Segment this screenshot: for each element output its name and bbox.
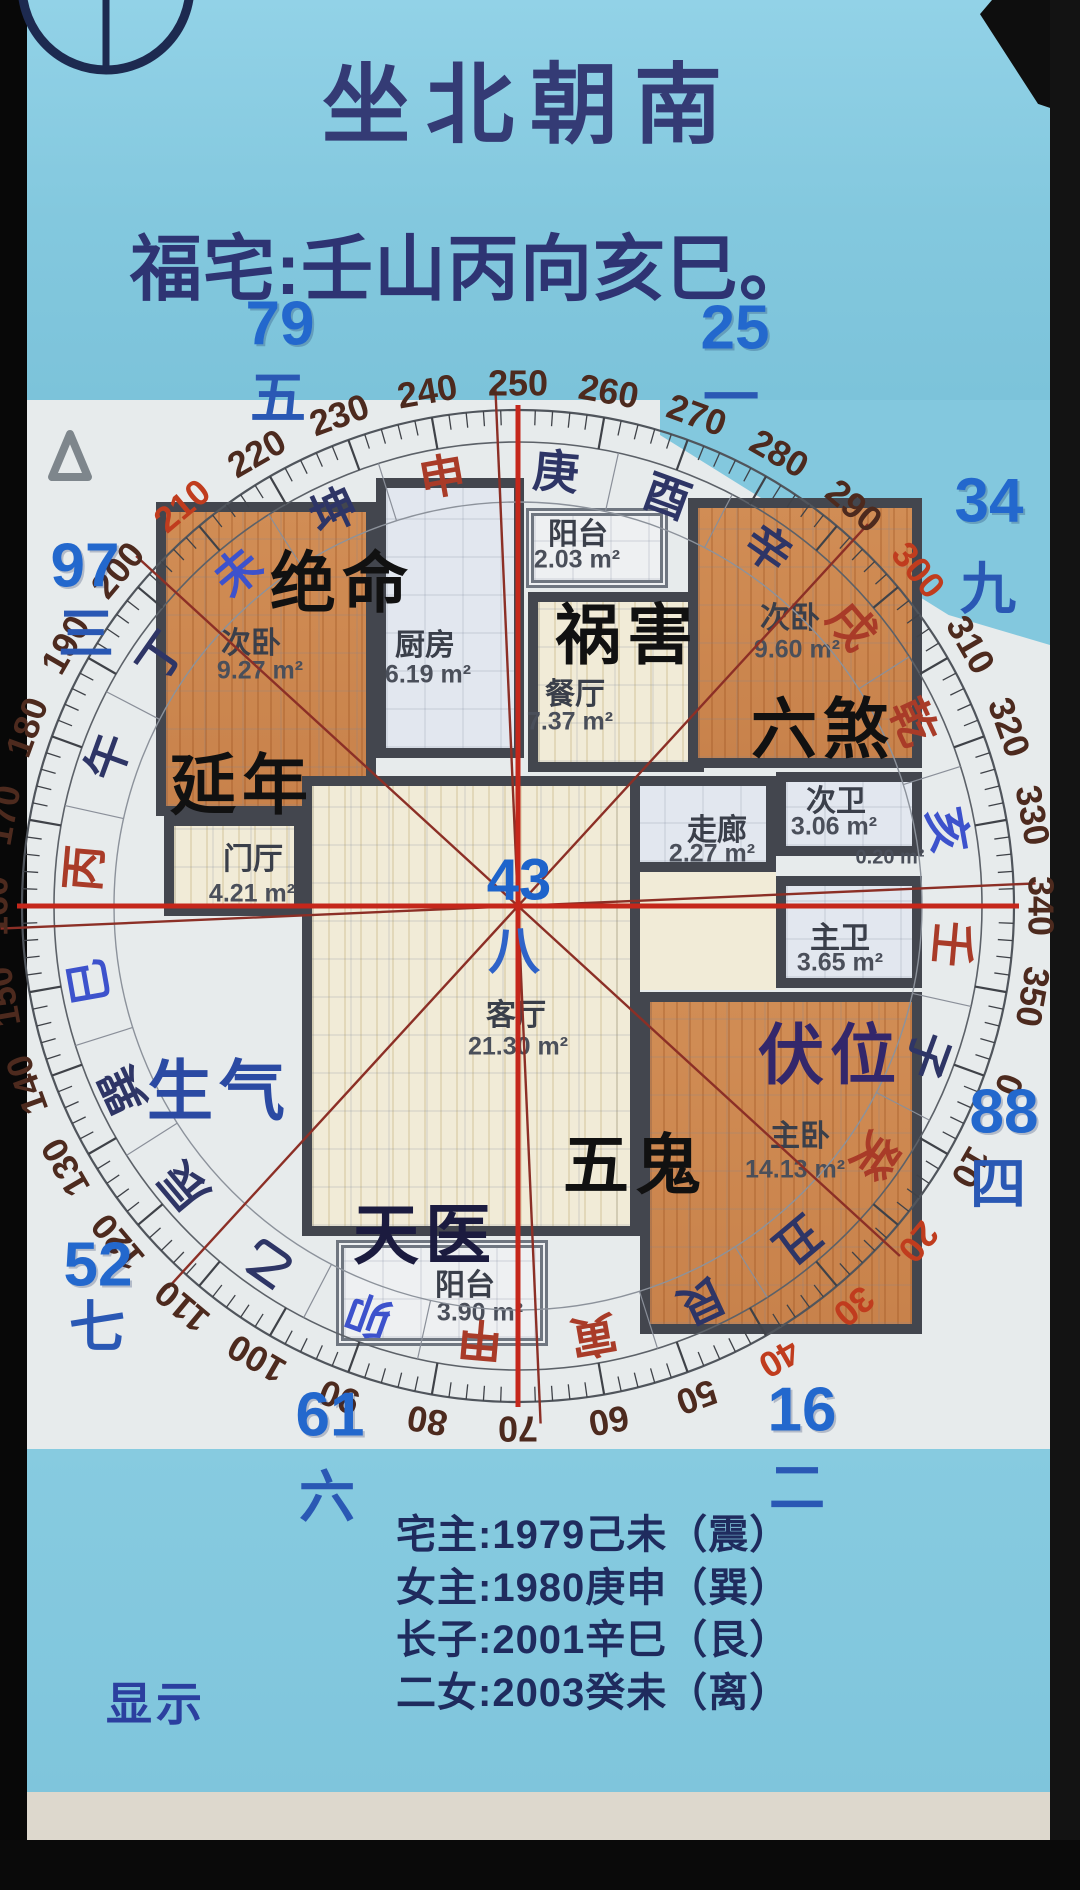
room-area-foyer: 4.21 m² [209,880,295,909]
room-name-bedroom-master: 主卧 [770,1111,830,1155]
room-area-balcony-bottom: 3.90 m² [437,1299,523,1328]
bazhai-star-生气: 生气 [147,1038,291,1134]
room-area-bath-second: 3.06 m² [791,813,877,842]
room-area-bedroom-master: 14.13 m² [745,1156,845,1185]
app-screen: 坐北朝南 福宅:壬山丙向亥巳。 次卧9.27 m²厨房6.19 m²阳台2.03… [0,0,1080,1890]
bazhai-star-延年: 延年 [170,732,314,828]
flying-star-trigram-六: 六 [299,1453,355,1534]
flying-star-value-34: 34 [955,466,1024,537]
flying-star-value-16: 16 [768,1375,837,1446]
bazhai-star-天医: 天医 [353,1182,497,1278]
flying-star-trigram-三: 三 [58,590,114,671]
room-name-living: 客厅 [486,990,546,1034]
flying-star-trigram-九: 九 [960,545,1016,626]
resident-line-3: 长子:2001辛巳（艮） [396,1607,790,1660]
room-area-corridor: 2.27 m² [669,840,755,869]
arrow-marker-icon [0,0,140,520]
room-area-dining: 7.37 m² [527,708,613,737]
room-name-foyer: 门厅 [223,834,283,878]
bazhai-star-伏位: 伏位 [758,1002,902,1098]
flying-star-value-88: 88 [970,1077,1039,1148]
resident-line-4: 二女:2003癸未（离） [396,1660,790,1713]
bazhai-star-绝命: 绝命 [270,530,414,626]
bazhai-star-五鬼: 五鬼 [563,1112,707,1208]
residents-info-block: 宅主:1979己未（震）女主:1980庚申（巽）长子:2001辛巳（艮）二女:2… [396,1502,790,1712]
flying-star-value-61: 61 [296,1380,365,1451]
resident-line-1: 宅主:1979己未（震） [396,1502,790,1555]
hallway-patch [616,872,776,990]
room-area-balcony-top: 2.03 m² [534,546,620,575]
flying-star-value-79: 79 [246,289,315,360]
flying-star-trigram-四: 四 [970,1140,1026,1221]
room-area-bath-master: 3.65 m² [797,949,883,978]
room-name-kitchen: 厨房 [395,620,455,664]
bazhai-star-六煞: 六煞 [751,676,895,772]
flying-star-trigram-一: 一 [703,354,759,435]
niche-area-label: 0.20 m² [856,847,925,870]
room-area-bedroom-right: 9.60 m² [754,636,840,665]
room-name-bedroom-right: 次卧 [760,593,820,637]
room-area-bedroom-left: 9.27 m² [217,657,303,686]
flying-star-trigram-七: 七 [69,1283,125,1364]
room-area-living: 21.30 m² [468,1033,568,1062]
bazhai-star-祸害: 祸害 [555,582,699,678]
display-button[interactable]: 显示 [106,1668,206,1734]
flying-star-trigram-五: 五 [250,354,306,435]
room-area-kitchen: 6.19 m² [385,661,471,690]
resident-line-2: 女主:1980庚申（巽） [396,1555,790,1608]
